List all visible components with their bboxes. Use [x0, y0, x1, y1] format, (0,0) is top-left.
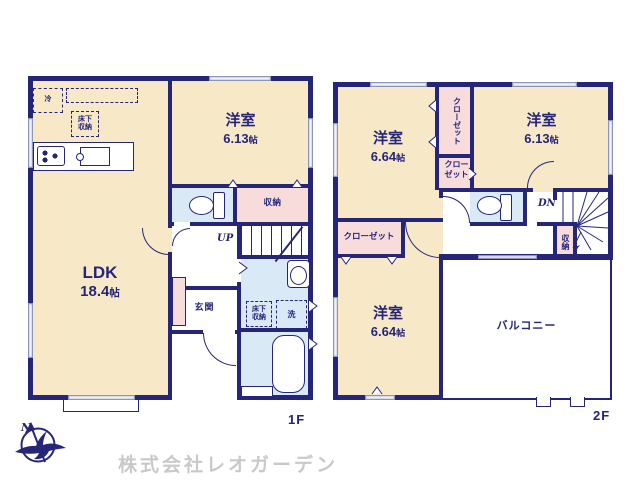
- bedroom-ne-label: 洋室 6.13帖: [470, 112, 613, 147]
- bedroom-sw-size: 6.64帖: [333, 324, 443, 340]
- faucet-icon: [76, 153, 84, 161]
- window: [512, 82, 577, 87]
- window: [28, 303, 33, 358]
- ldk-name: LDK: [28, 262, 172, 283]
- bedroom-ne-name: 洋室: [470, 112, 613, 131]
- kitchen-sink: [80, 147, 110, 166]
- door-symbol: [372, 387, 382, 394]
- underfloor-storage-kitchen: 床下収納: [71, 111, 99, 137]
- fridge-label: 冷: [45, 96, 52, 104]
- wall: [537, 222, 553, 226]
- toilet-bowl: [189, 196, 214, 215]
- closet-tall-label: クローゼット: [439, 86, 474, 156]
- entrance-label: 玄関: [168, 302, 241, 313]
- bedroom-1f-size: 6.13帖: [168, 131, 313, 147]
- terrace-step: [63, 400, 139, 412]
- wall: [237, 282, 241, 400]
- window: [365, 395, 395, 400]
- toilet-tank: [213, 192, 225, 219]
- north-label: N: [20, 421, 32, 434]
- bedroom-nw-name: 洋室: [333, 130, 443, 149]
- bedroom-sw-label: 洋室 6.64帖: [333, 305, 443, 340]
- door-arc-bedroom-nw: [443, 196, 470, 223]
- balcony-support: [536, 397, 551, 407]
- wall: [443, 188, 533, 192]
- closet-1f-label: 収納: [237, 197, 308, 208]
- bedroom-1f-label: 洋室 6.13帖: [168, 112, 313, 147]
- laundry-label: 洗: [288, 310, 296, 320]
- closet-small-label: クローゼット: [439, 160, 474, 180]
- laundry-space: 洗: [276, 300, 307, 329]
- door-symbol: [292, 180, 302, 187]
- refrigerator-space: 冷: [33, 88, 63, 113]
- balcony-label: バルコニー: [443, 320, 610, 334]
- door-symbol: [429, 100, 436, 112]
- bathtub: [272, 335, 305, 393]
- bedroom-ne-size: 6.13帖: [470, 131, 613, 147]
- ldk-label: LDK 18.4帖: [28, 262, 172, 302]
- vent-symbol: [309, 338, 317, 350]
- underfloor-storage-washroom: 床下収納: [246, 301, 272, 327]
- bedroom-nw-label: 洋室 6.64帖: [333, 130, 443, 165]
- bedroom-sw-name: 洋室: [333, 305, 443, 324]
- window: [478, 255, 537, 259]
- bedroom-nw-size: 6.64帖: [333, 149, 443, 165]
- door-symbol: [341, 257, 351, 264]
- wall: [523, 188, 527, 226]
- bedroom-1f-name: 洋室: [168, 112, 313, 131]
- logo-bird-icon: [15, 431, 66, 459]
- wall: [168, 76, 172, 228]
- door-symbol: [387, 257, 397, 264]
- door-symbol: [228, 180, 238, 187]
- company-watermark: 株式会社レオガーデン: [118, 450, 338, 477]
- stairs-up-label: UP: [217, 233, 233, 244]
- storage-2f-label: 収納: [555, 227, 575, 257]
- underfloor-label: 床下収納: [77, 116, 93, 133]
- toilet-bowl: [477, 196, 502, 215]
- wall: [186, 286, 241, 290]
- door-arc-entrance: [203, 333, 236, 366]
- stairs-down-label: DN: [538, 198, 556, 209]
- vent-symbol: [309, 300, 317, 312]
- toilet-tank: [500, 194, 512, 221]
- door-arc-toilet-1f: [172, 228, 190, 246]
- window: [370, 82, 427, 87]
- balcony-support: [570, 397, 585, 407]
- washbasin-bowl: [290, 266, 307, 285]
- cupboard-space: [66, 88, 138, 103]
- underfloor-label: 床下収納: [251, 306, 267, 323]
- ldk-size: 18.4帖: [28, 283, 172, 302]
- wall: [470, 222, 527, 226]
- floor2-label: 2F: [593, 408, 610, 423]
- floor1-label: 1F: [288, 412, 305, 427]
- compass: N: [12, 419, 82, 477]
- closet-sw-label: クローゼット: [333, 231, 405, 242]
- floor-plan-canvas: UP 冷 床下収納 床下収納 洗 LDK 18.4帖 洋室 6.13帖 収納 玄…: [0, 0, 640, 480]
- window: [209, 76, 271, 81]
- door-symbol: [239, 262, 247, 274]
- wall: [168, 330, 203, 334]
- bath-counter: [241, 386, 273, 397]
- stove-icon: [37, 146, 65, 166]
- wall: [168, 222, 174, 226]
